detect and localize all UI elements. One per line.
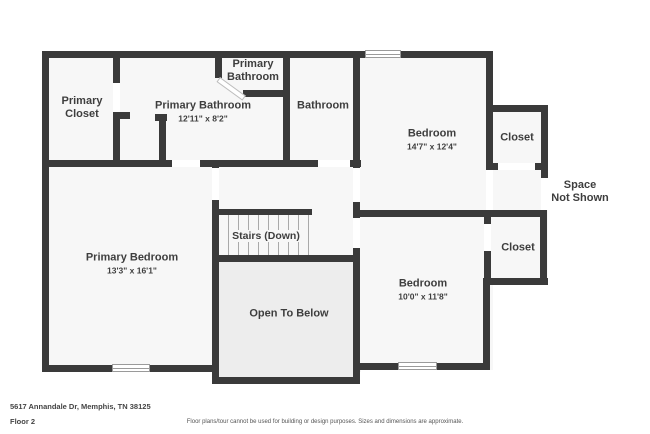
wall	[42, 160, 172, 167]
wall	[42, 365, 112, 372]
disclaimer-text: Floor plans/tour cannot be used for buil…	[187, 419, 464, 425]
floor-plan: Primary Closet Primary Bathroom 12'11" x…	[0, 0, 650, 434]
door-gap	[353, 218, 360, 248]
wall	[484, 251, 491, 285]
label-primary-closet: Primary Closet	[62, 95, 103, 121]
room-dims: 10'0" x 11'8"	[398, 292, 447, 302]
wall	[353, 51, 360, 168]
address-text: 5617 Annandale Dr, Memphis, TN 38125	[10, 402, 151, 411]
wall	[540, 210, 547, 285]
label-primary-bathroom-small: Primary Bathroom	[227, 58, 279, 84]
room-name: Primary Bedroom	[86, 252, 178, 264]
window-marker	[112, 364, 150, 372]
floor-number-text: Floor 2	[10, 417, 35, 426]
wall	[212, 200, 219, 383]
window-marker	[398, 362, 437, 370]
door-gap	[484, 224, 491, 251]
wall	[212, 377, 360, 384]
room-name: Bedroom	[399, 278, 447, 290]
room-dims: 13'3" x 16'1"	[86, 266, 178, 276]
wall	[484, 217, 491, 224]
wall	[212, 160, 219, 168]
label-primary-bathroom-main: Primary Bathroom 12'11" x 8'2"	[155, 87, 251, 138]
door-gap	[212, 168, 219, 200]
room-name: Primary Bathroom	[155, 100, 251, 112]
wall	[42, 51, 49, 372]
label-open-to-below: Open To Below	[249, 307, 328, 320]
room-name: Bedroom	[408, 128, 456, 140]
wall	[212, 255, 357, 262]
wall	[487, 105, 548, 112]
wall	[486, 51, 493, 170]
door-gap	[318, 160, 350, 167]
wall	[150, 365, 218, 372]
room-dims: 14'7" x 12'4"	[407, 142, 457, 152]
door-gap	[541, 178, 548, 210]
label-closet-top: Closet	[500, 131, 534, 144]
label-stairs: Stairs (Down)	[229, 230, 303, 242]
label-space-not-shown: Space Not Shown	[551, 179, 608, 205]
door-gap	[486, 170, 493, 210]
wall	[353, 202, 360, 218]
wall	[483, 285, 490, 370]
door-gap	[498, 163, 535, 170]
label-bathroom: Bathroom	[297, 99, 349, 112]
label-bedroom-top: Bedroom 14'7" x 12'4"	[407, 115, 457, 166]
label-closet-bottom: Closet	[501, 241, 535, 254]
wall	[113, 51, 120, 83]
door-gap	[113, 83, 120, 112]
wall	[215, 51, 222, 78]
wall	[353, 248, 360, 383]
wall	[483, 278, 548, 285]
window-marker	[365, 50, 401, 58]
wall	[541, 105, 548, 178]
door-gap	[172, 160, 200, 167]
wall	[353, 210, 547, 217]
label-primary-bedroom: Primary Bedroom 13'3" x 16'1"	[86, 239, 178, 290]
door-gap	[353, 168, 360, 202]
room-dims: 12'11" x 8'2"	[155, 114, 251, 124]
label-bedroom-bottom: Bedroom 10'0" x 11'8"	[398, 265, 447, 316]
wall	[113, 112, 130, 119]
wall	[283, 51, 290, 167]
wall	[113, 112, 120, 167]
